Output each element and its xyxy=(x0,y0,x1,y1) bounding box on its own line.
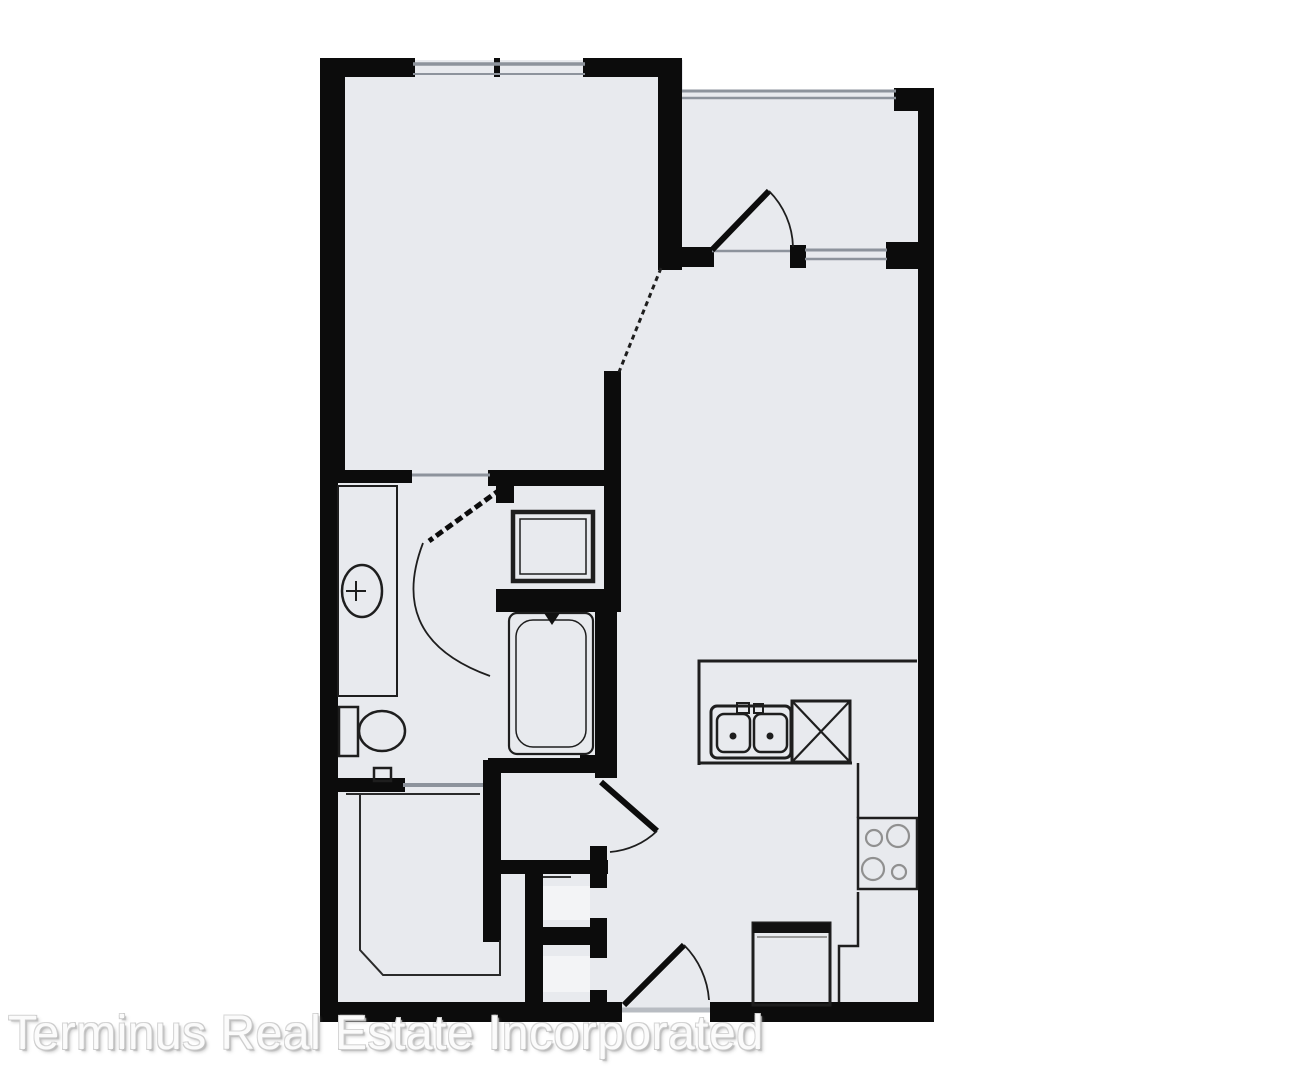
bathroom-living-wall xyxy=(604,371,621,612)
laundry-mid-flange xyxy=(590,918,607,958)
balcony-bottom-wall-right-block xyxy=(886,242,934,269)
laundry-left-wall xyxy=(525,874,543,1014)
kitchen-door-jamb-flange xyxy=(590,846,607,888)
floor-plan-page: Terminus Real Estate Incorporated xyxy=(0,0,1295,1080)
top-wall-left-block xyxy=(320,58,415,77)
bathroom-top-wall xyxy=(320,470,412,483)
closet-right-wall xyxy=(483,760,501,942)
balcony-bottom-wall-left-block xyxy=(790,245,806,268)
under-tub-wall xyxy=(488,758,598,773)
left-outer-wall-lower xyxy=(320,470,338,1020)
bedroom-wall-stub xyxy=(658,247,714,267)
floor-plan-drawing xyxy=(0,0,1295,1080)
tub-right-wall xyxy=(595,612,617,778)
laundry-niche-upper xyxy=(543,886,590,920)
shower-tub-divider-wall xyxy=(496,589,621,612)
laundry-mid-arm-wall xyxy=(543,927,592,945)
bottom-wall-left xyxy=(320,1002,622,1022)
bedroom-right-wall xyxy=(658,58,682,270)
right-outer-wall xyxy=(918,88,934,1022)
laundry-bottom-flange xyxy=(590,990,607,1012)
left-outer-wall-upper xyxy=(320,58,345,470)
laundry-niche-lower xyxy=(543,956,590,992)
room-floor-fill xyxy=(326,60,928,1012)
